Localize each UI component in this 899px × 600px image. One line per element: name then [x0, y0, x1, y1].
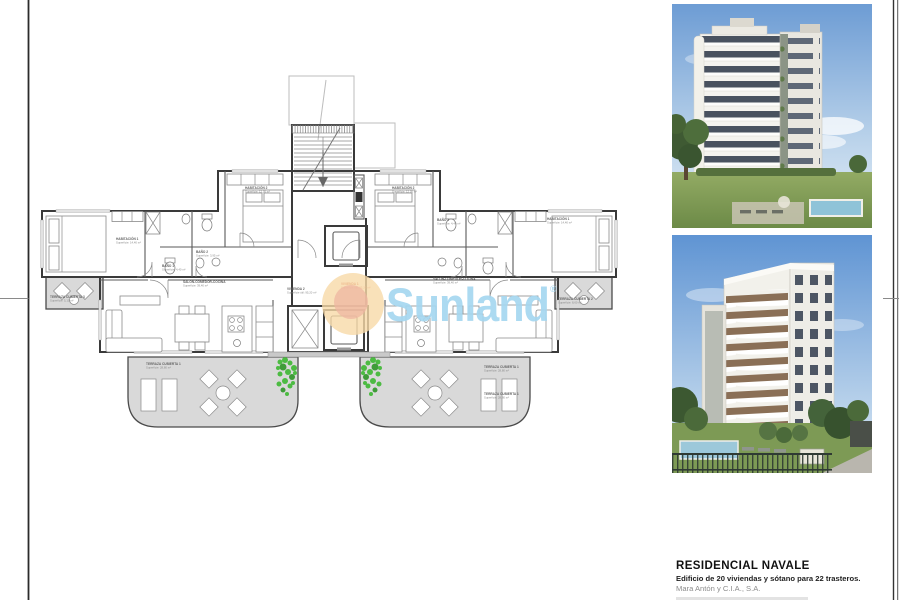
building-render-bottom: [672, 235, 872, 473]
wall: [850, 421, 872, 447]
door-swings: [137, 233, 254, 298]
svg-text:Superficie: 14,40 m²: Superficie: 14,40 m²: [547, 220, 572, 224]
duct-shaft: [354, 175, 364, 219]
project-title: RESIDENCIAL NAVALE: [676, 560, 891, 573]
svg-text:Superficie: 5,10 m²: Superficie: 5,10 m²: [50, 298, 74, 302]
bedroom-2: [227, 174, 283, 242]
svg-text:Superficie: 28,80 m²: Superficie: 28,80 m²: [484, 395, 509, 399]
svg-text:Superficie: 28,80 m²: Superficie: 28,80 m²: [146, 365, 171, 369]
project-company: Mara Antón y C.I.A., S.A.: [676, 585, 891, 594]
sun-core-icon: [334, 285, 368, 319]
watermark-brand-text: Sunland: [386, 278, 549, 331]
living-dining-kitchen: [106, 296, 273, 352]
project-subtitle: Edificio de 20 viviendas y sótano para 2…: [676, 575, 891, 584]
svg-text:Superficie: 12,05 m²: Superficie: 12,05 m²: [392, 189, 417, 193]
roof-outline: [289, 76, 354, 125]
svg-text:Superficie: 28,80 m²: Superficie: 28,80 m²: [484, 368, 509, 372]
svg-text:Superficie: 12,05 m²: Superficie: 12,05 m²: [245, 189, 270, 193]
stairwell: [292, 125, 354, 191]
project-info: RESIDENCIAL NAVALE Edificio de 20 vivien…: [676, 560, 891, 600]
bathroom-2: [196, 214, 220, 268]
hedge: [696, 168, 836, 176]
shrub: [849, 155, 867, 173]
stair-direction-arrow: [318, 177, 328, 187]
svg-text:Superficie: 8,60 m²: Superficie: 8,60 m²: [558, 300, 582, 304]
roof-outline-2: [354, 123, 395, 168]
svg-text:Superficie: 4,40 m²: Superficie: 4,40 m²: [437, 221, 461, 225]
watermark-logo: Sunland ®: [322, 273, 557, 335]
sun-loungers: [740, 210, 783, 213]
pool: [810, 200, 862, 216]
registered-mark-icon: ®: [550, 284, 557, 294]
building-render-top: [672, 4, 872, 228]
svg-text:Superficie: 14,40 m²: Superficie: 14,40 m²: [116, 240, 141, 244]
plan-sheet: HABITACIÓN 1 Superficie: 14,40 m² BAÑO 1…: [0, 0, 899, 600]
parasol: [778, 196, 790, 208]
svg-text:Superficie: 39,40 m²: Superficie: 39,40 m²: [183, 283, 208, 287]
entry-door-left: [298, 240, 316, 258]
entry-door-right: [342, 240, 360, 258]
svg-text:Superficie: 3,95 m²: Superficie: 3,95 m²: [196, 253, 220, 257]
svg-text:Superficie útil: 95,20 m²: Superficie útil: 95,20 m²: [287, 290, 316, 294]
svg-text:Superficie: 4,40 m²: Superficie: 4,40 m²: [162, 267, 186, 271]
building-tower: [694, 18, 822, 182]
